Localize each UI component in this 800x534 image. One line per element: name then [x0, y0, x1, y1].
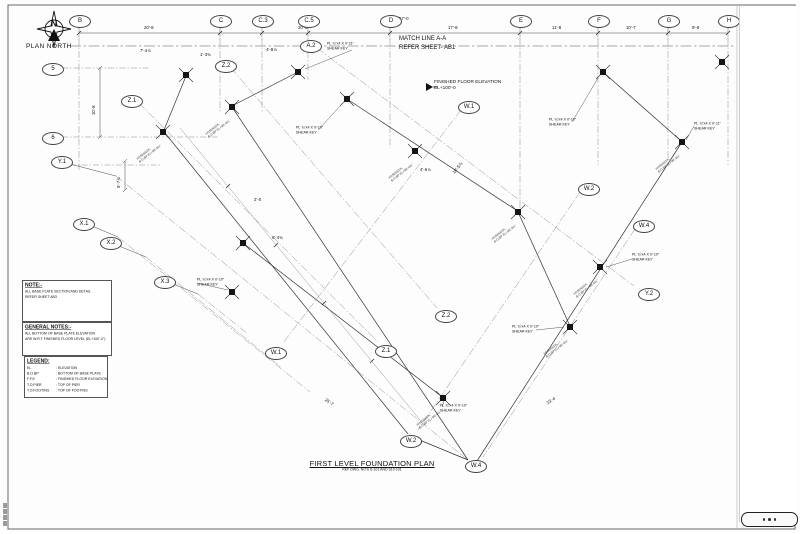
dim-f-g: 10'-7 — [626, 26, 636, 30]
legend-box: LEGEND: EL: ELEVATION B.O.BP: BOTTOM OF … — [24, 356, 108, 398]
note-line-2: REFER SHEET AB3 — [25, 295, 112, 300]
grid-bubble-a2: A.2 — [300, 40, 322, 53]
dim-b-c: 20'-8 — [144, 26, 154, 30]
grid-bubble-h: H — [718, 15, 740, 28]
grid-bubble-w2-bot: W.2 — [400, 435, 422, 448]
note-box: NOTE:- ALL BASE PLATE SECTION AND DETAIL… — [22, 280, 112, 322]
drawing-title: FIRST LEVEL FOUNDATION PLAN — [292, 459, 452, 468]
plan-drawing-canvas: N — [0, 0, 800, 534]
match-line-label: MATCH LINE A-A — [399, 36, 446, 42]
grid-bubble-c5: C.5 — [298, 15, 320, 28]
grid-bubble-w2-top: W.2 — [578, 183, 600, 196]
callout-shear-key-1: PL ¾"x4 X 0'-11" SHEAR KEY — [327, 42, 384, 51]
plan-north-label: PLAN NORTH — [26, 43, 72, 50]
vertical-grid-lines — [79, 26, 728, 216]
dim-scatter-3: 4'-8⅞ — [266, 48, 277, 52]
diagonal-dimension-line — [180, 128, 420, 420]
dim-g-h: 9'-8 — [692, 26, 699, 30]
legend-title: LEGEND: — [27, 359, 108, 365]
grid-bubble-f: F — [588, 15, 610, 28]
legend-abbr: T.O.FOOTING — [27, 388, 56, 394]
grid-bubble-w4-bot: W.4 — [465, 460, 487, 473]
grid-bubble-d: D — [380, 15, 402, 28]
callout-shear-key-5: PL ¾"x4 X 0'-10" SHEAR KEY — [632, 253, 689, 262]
ffe-note: FINISHED FLOOR ELEVATION EL+100'-0 — [434, 79, 522, 92]
grid-bubble-y1: Y.1 — [51, 156, 73, 169]
dim-5-6: 10'-8 — [92, 105, 96, 115]
north-arrow-icon: N — [37, 11, 71, 47]
dim-scatter-1: 7'-4⅞ — [140, 49, 151, 53]
dim-scatter-7: 2'-0 — [254, 198, 261, 202]
grid-bubble-w4-top: W.4 — [633, 220, 655, 233]
grid-bubble-e: E — [510, 15, 532, 28]
grid-bubble-c: C — [210, 15, 232, 28]
dim-scatter-6: 6'-4¾ — [272, 236, 283, 240]
general-notes-box: GENERAL NOTES:- ALL BOTTOM OF BASE PLATE… — [22, 322, 112, 356]
callout-shear-key-2: PL ¾"x4 X 0'-10" SHEAR KEY — [296, 126, 353, 135]
grid-bubble-x3: X.3 — [154, 276, 176, 289]
callout-shear-key-8: PL ¾"x4 X 0'-10" SHEAR KEY — [197, 278, 254, 287]
north-letter: N — [51, 19, 58, 29]
grid-bubble-x1: X.1 — [73, 218, 95, 231]
diagonal-grid-lines — [116, 48, 635, 460]
sheet-edge-marks — [3, 503, 7, 526]
grid-bubble-y2: Y.2 — [638, 288, 660, 301]
dim-scatter-2: 1'-3¾ — [200, 53, 211, 57]
match-line-refer: REFER SHEET- AB1 — [399, 45, 455, 51]
drawing-sheet: N — [0, 0, 800, 534]
grid-bubble-z1-top: Z.1 — [121, 95, 143, 108]
grid-bubble-b: B — [69, 15, 91, 28]
grid-bubble-w1-top: W.1 — [458, 101, 480, 114]
dim-y1: 5'-7⅞ — [117, 177, 121, 188]
grid-bubble-w1-bot: W.1 — [265, 347, 287, 360]
drawing-subtitle: REF DWG. NO'S S-101 AND S10-101 — [332, 468, 412, 472]
dim-d-e: 17'-8 — [448, 26, 458, 30]
panel-handle[interactable] — [741, 512, 798, 527]
legend-desc: : TOP OF FOOTING — [56, 388, 108, 394]
side-panel — [739, 6, 797, 522]
note-title: NOTE:- — [25, 283, 112, 289]
structural-lines — [164, 72, 682, 461]
callout-shear-key-7: PL ¾"x4 X 0'-10" SHEAR KEY — [440, 404, 497, 413]
callout-shear-key-6: PL ¾"x4 X 0'-10" SHEAR KEY — [512, 325, 569, 334]
dim-e-f: 11'-8 — [552, 26, 561, 30]
grid-bubble-z2-top: Z.2 — [215, 60, 237, 73]
grid-bubble-6: 6 — [42, 132, 64, 145]
grid-bubble-x2: X.2 — [100, 237, 122, 250]
dim-scatter-4: 4'-6⅞ — [420, 168, 431, 172]
drawing-title-block: FIRST LEVEL FOUNDATION PLAN REF DWG. NO'… — [292, 459, 452, 475]
general-notes-line-2: ARE W.R.T FINISHED FLOOR LEVEL (EL+100'-… — [25, 337, 112, 342]
grid-bubble-c3: C.3 — [252, 15, 274, 28]
grid-bubble-g: G — [658, 15, 680, 28]
grid-bubble-z1-bot: Z.1 — [375, 345, 397, 358]
grid-bubble-5: 5 — [42, 63, 64, 76]
general-notes-title: GENERAL NOTES:- — [25, 325, 112, 331]
grid-bubble-z2-bot: Z.2 — [435, 310, 457, 323]
callout-shear-key-3: PL ¾"x4 X 0'-10" SHEAR KEY — [549, 118, 606, 127]
